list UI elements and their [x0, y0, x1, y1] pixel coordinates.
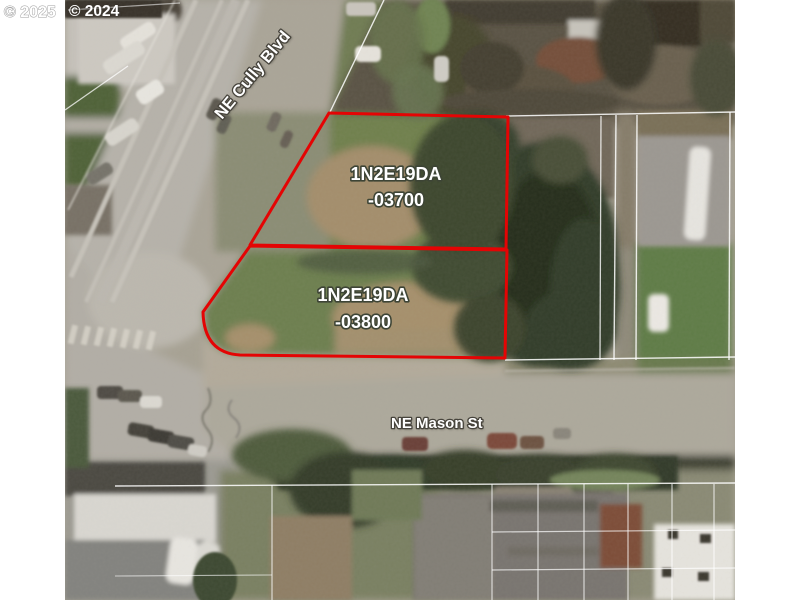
svg-text:© 2024: © 2024	[69, 3, 120, 20]
svg-text:-03700: -03700	[368, 190, 424, 210]
svg-text:NE Mason St: NE Mason St	[391, 415, 483, 432]
svg-text:1N2E19DA: 1N2E19DA	[350, 164, 441, 184]
svg-text:1N2E19DA: 1N2E19DA	[317, 285, 408, 305]
svg-text:© 2025: © 2025	[4, 4, 56, 21]
svg-text:-03800: -03800	[335, 312, 391, 332]
